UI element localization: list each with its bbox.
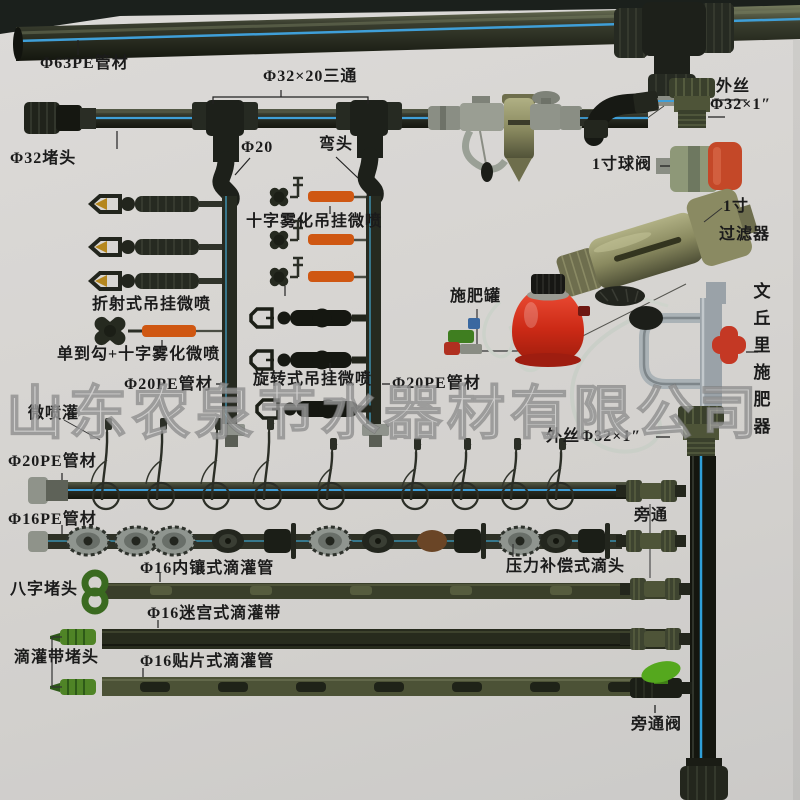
label-cross-atomizer: 十字雾化吊挂微喷 [246,213,382,231]
label-tee-32x20: Φ32×20三通 [263,68,357,86]
label-phi20-pipe-row: Φ20PE管材 [8,453,97,471]
label-male-adapter-top-2: Φ32×1″ [710,96,771,114]
phi32-end-plug [24,102,96,134]
label-phi32-plug: Φ32堵头 [10,150,76,168]
label-drip-tape-plug: 滴灌带堵头 [14,649,99,667]
label-maze-drip-tape: Φ16迷宫式滴灌带 [147,605,281,623]
handwheel-valve [530,91,562,130]
right-riser-pipe [690,456,716,768]
label-patch-drip-pipe: Φ16贴片式滴灌管 [140,653,274,671]
refraction-sprayers [91,196,285,296]
coupling-gray [428,106,462,130]
label-single-hook-atomizer: 单到勾+十字雾化微喷 [57,346,220,364]
product-diagram: Φ63PE管材 Φ32×20三通 Φ32堵头 Φ20 弯头 外丝 Φ32×1″ … [0,0,800,800]
maze-drip-tape-row [102,620,666,649]
phi16-manifold [28,523,622,559]
cross-atomizer-sprayers [268,178,366,288]
injector-with-clamp [460,96,505,182]
label-filter-1: 1寸 [723,198,749,216]
label-ball-valve: 1寸球阀 [592,156,652,174]
label-phi20: Φ20 [241,139,273,157]
patch-drip-pipe-row [102,668,666,696]
label-figure8-plug: 八字堵头 [10,581,78,599]
label-bypass: 旁通 [634,507,668,525]
label-male-adapter-top-1: 外丝 [716,78,750,96]
company-watermark: 山东农泉节水器材有限公司 [6,366,800,450]
bottom-coupling [680,758,728,800]
label-elbow: 弯头 [319,136,353,154]
bypass-valve [630,657,692,713]
label-filter-2: 过滤器 [719,226,770,244]
bypass-fittings [616,480,690,650]
label-fertilizer-tank: 施肥罐 [450,288,501,306]
label-bypass-valve: 旁通阀 [631,716,682,734]
label-phi63-pipe: Φ63PE管材 [40,55,129,73]
ball-valve-1inch [656,142,742,192]
label-phi16-pipe-row: Φ16PE管材 [8,511,97,529]
single-hook-cross-atomizer [92,314,222,348]
label-pressure-comp-dripper: 压力补偿式滴头 [506,558,625,576]
label-inline-drip-pipe: Φ16内镶式滴灌管 [140,560,274,578]
figure8-plug [85,573,105,611]
label-refraction-sprayer: 折射式吊挂微喷 [92,296,211,314]
